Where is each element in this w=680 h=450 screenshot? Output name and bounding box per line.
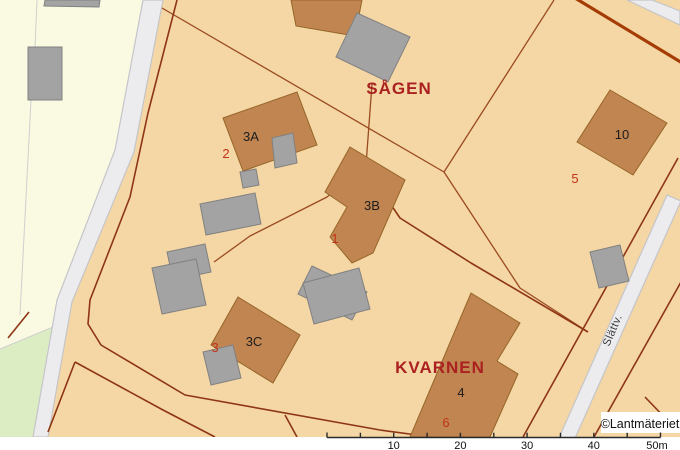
label-building-3a: 3A xyxy=(243,129,259,144)
parcel-number-3: 3 xyxy=(211,340,218,355)
parcel-number-2: 2 xyxy=(222,146,229,161)
map-viewport[interactable]: SÅGEN KVARNEN 3A 3B 3C 10 4 2 1 3 5 6 Sl… xyxy=(0,0,680,450)
label-building-3b: 3B xyxy=(364,198,380,213)
scale-label-30: 30 xyxy=(521,440,533,450)
label-building-10: 10 xyxy=(615,127,629,142)
parcel-number-1: 1 xyxy=(331,231,338,246)
scale-label-50m: 50m xyxy=(646,440,667,450)
label-building-3c: 3C xyxy=(246,334,263,349)
label-kvarnen: KVARNEN xyxy=(395,358,485,377)
parcel-number-6: 6 xyxy=(442,415,449,430)
outbuilding xyxy=(240,169,259,188)
outbuilding xyxy=(44,0,100,7)
scale-label-40: 40 xyxy=(588,440,600,450)
map-canvas[interactable]: SÅGEN KVARNEN 3A 3B 3C 10 4 2 1 3 5 6 Sl… xyxy=(0,0,680,450)
outbuilding xyxy=(28,47,62,100)
label-building-4: 4 xyxy=(457,385,464,400)
scale-label-20: 20 xyxy=(454,440,466,450)
copyright-label: ©Lantmäteriet xyxy=(601,417,680,431)
outbuilding xyxy=(152,259,206,314)
label-sagen: SÅGEN xyxy=(366,79,431,98)
scale-label-10: 10 xyxy=(388,440,400,450)
map-bottom-margin xyxy=(0,437,680,450)
outbuilding xyxy=(272,133,297,168)
parcel-number-5: 5 xyxy=(571,171,578,186)
